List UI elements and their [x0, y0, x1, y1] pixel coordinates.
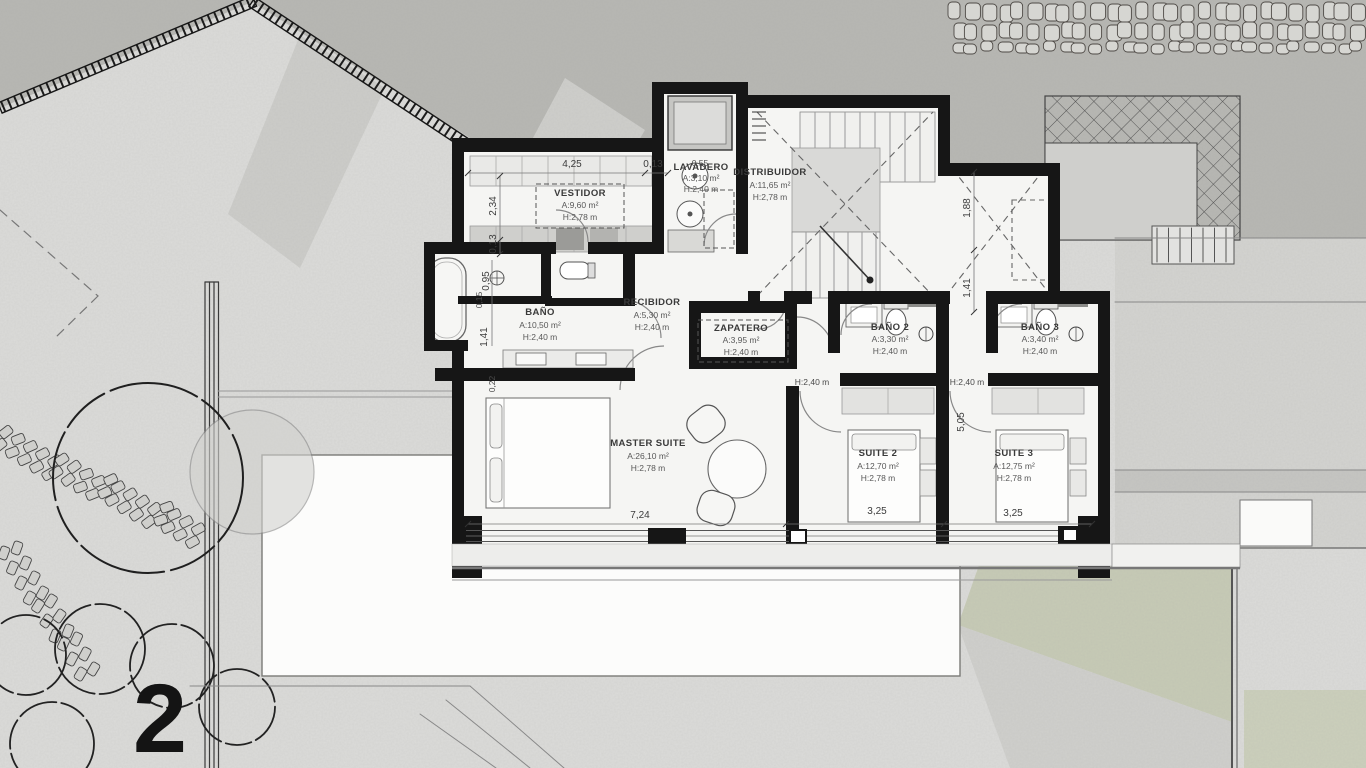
dimension-label: 0,95 [481, 271, 492, 291]
dimension-label: 3,25 [867, 506, 887, 517]
dimension-label: 1,41 [962, 278, 973, 298]
dimension-label: 0,13 [488, 234, 499, 254]
svg-text:H:2,40 m: H:2,40 m [684, 184, 719, 194]
room-label: RECIBIDOR [624, 297, 681, 308]
svg-text:A:3,30 m²: A:3,30 m² [872, 334, 909, 344]
room-label: MASTER SUITE [610, 438, 686, 449]
room-label: SUITE 3 [995, 448, 1034, 459]
svg-text:A:3,95 m²: A:3,95 m² [723, 335, 760, 345]
dimension-label: 0,13 [643, 159, 663, 170]
svg-text:A:26,10 m²: A:26,10 m² [627, 451, 669, 461]
svg-text:H:2,78 m: H:2,78 m [861, 473, 896, 483]
dimension-label: 1,88 [962, 198, 973, 218]
room-label: VESTIDOR [554, 188, 606, 199]
dimension-label: 4,25 [562, 159, 582, 170]
svg-text:H:2,78 m: H:2,78 m [753, 192, 788, 202]
round-table [708, 440, 766, 498]
dimension-label: 7,24 [630, 510, 650, 521]
dimension-label: 0,55 [692, 158, 709, 168]
svg-text:H:2,40 m: H:2,40 m [724, 347, 759, 357]
svg-text:A:3,40 m²: A:3,40 m² [1022, 334, 1059, 344]
dimension-label: 5,05 [956, 412, 967, 432]
room-label: SUITE 2 [859, 448, 898, 459]
svg-text:A:10,50 m²: A:10,50 m² [519, 320, 561, 330]
sheet-number: 2 [133, 664, 187, 768]
room-label: BAÑO 2 [871, 322, 909, 333]
svg-text:A:12,70 m²: A:12,70 m² [857, 461, 899, 471]
toilet [560, 262, 590, 279]
svg-text:H:2,40 m: H:2,40 m [873, 346, 908, 356]
master-bed [486, 398, 610, 508]
svg-text:H:2,40 m: H:2,40 m [523, 332, 558, 342]
svg-text:A:5,30 m²: A:5,30 m² [634, 310, 671, 320]
svg-text:A:12,75 m²: A:12,75 m² [993, 461, 1035, 471]
floor-plan-canvas: VESTIDOR A:9,60 m² H:2,78 m LAVADERO A:3… [0, 0, 1366, 768]
room-label: BAÑO 3 [1021, 322, 1059, 333]
dimension-label: 3,25 [1003, 508, 1023, 519]
height-label: H:2,40 m [950, 377, 985, 387]
svg-text:H:2,40 m: H:2,40 m [1023, 346, 1058, 356]
svg-text:H:2,78 m: H:2,78 m [563, 212, 598, 222]
dimension-label: 2,34 [488, 196, 499, 216]
room-label: BAÑO [525, 307, 555, 318]
height-label: H:2,40 m [795, 377, 830, 387]
svg-text:H:2,78 m: H:2,78 m [997, 473, 1032, 483]
svg-text:A:11,65 m²: A:11,65 m² [750, 180, 791, 190]
room-label: ZAPATERO [714, 323, 768, 334]
dimension-label: 1,41 [479, 327, 490, 347]
svg-text:A:3,10 m²: A:3,10 m² [683, 173, 720, 183]
svg-text:H:2,40 m: H:2,40 m [635, 322, 670, 332]
room-label: DISTRIBUIDOR [733, 167, 806, 178]
dimension-label: 0,22 [487, 375, 497, 392]
dimension-label: 0,15 [474, 291, 484, 308]
svg-text:H:2,78 m: H:2,78 m [631, 463, 666, 473]
svg-text:A:9,60 m²: A:9,60 m² [562, 200, 599, 210]
